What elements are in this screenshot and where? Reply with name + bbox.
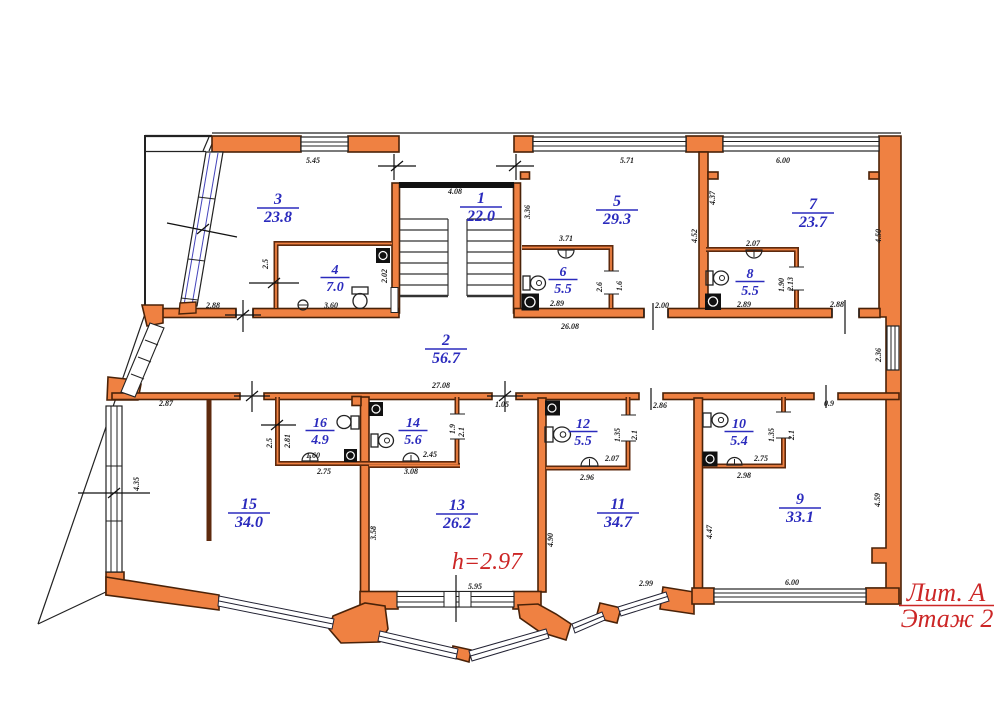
svg-text:13: 13 <box>449 497 465 514</box>
svg-text:2.07: 2.07 <box>604 454 620 463</box>
svg-text:4.9: 4.9 <box>310 433 329 448</box>
svg-text:Этаж 2: Этаж 2 <box>901 604 994 633</box>
svg-text:2.88: 2.88 <box>829 300 844 309</box>
svg-text:9: 9 <box>796 491 804 508</box>
svg-text:1.6: 1.6 <box>615 281 624 291</box>
svg-text:3.36: 3.36 <box>523 205 532 220</box>
svg-text:5.5: 5.5 <box>574 434 592 449</box>
svg-text:1.60: 1.60 <box>306 451 320 460</box>
svg-text:3.08: 3.08 <box>403 467 418 476</box>
svg-text:2.00: 2.00 <box>654 301 669 310</box>
svg-text:10: 10 <box>732 417 746 432</box>
svg-text:4.35: 4.35 <box>132 477 141 492</box>
svg-text:34.0: 34.0 <box>234 514 263 531</box>
svg-text:2.6: 2.6 <box>595 282 604 293</box>
svg-text:26.2: 26.2 <box>442 515 471 532</box>
svg-text:14: 14 <box>406 416 420 431</box>
svg-text:2.81: 2.81 <box>283 434 292 449</box>
svg-text:5: 5 <box>613 193 621 210</box>
svg-text:2.96: 2.96 <box>579 473 594 482</box>
svg-text:5.45: 5.45 <box>306 156 320 165</box>
svg-text:2.07: 2.07 <box>745 239 761 248</box>
svg-text:6: 6 <box>560 265 567 280</box>
svg-text:11: 11 <box>610 496 625 513</box>
svg-text:4.37: 4.37 <box>708 190 717 206</box>
svg-text:2.45: 2.45 <box>422 450 437 459</box>
svg-text:3: 3 <box>273 191 282 208</box>
svg-text:2.86: 2.86 <box>652 401 667 410</box>
svg-text:29.3: 29.3 <box>602 211 631 228</box>
svg-text:2.98: 2.98 <box>736 471 751 480</box>
svg-text:26.08: 26.08 <box>560 322 579 331</box>
svg-text:2.87: 2.87 <box>158 399 174 408</box>
svg-text:1.90: 1.90 <box>777 278 786 292</box>
svg-text:6.00: 6.00 <box>776 156 790 165</box>
svg-text:2.13: 2.13 <box>786 277 795 292</box>
svg-text:15: 15 <box>241 496 257 513</box>
svg-text:7.0: 7.0 <box>326 280 344 295</box>
svg-text:6.00: 6.00 <box>785 578 799 587</box>
svg-text:7: 7 <box>809 196 818 213</box>
svg-text:Лит. А: Лит. А <box>906 578 986 607</box>
svg-text:3.71: 3.71 <box>558 234 573 243</box>
svg-text:33.1: 33.1 <box>785 509 814 526</box>
svg-text:56.7: 56.7 <box>432 350 461 367</box>
svg-text:1.35: 1.35 <box>613 428 622 442</box>
svg-text:2.1: 2.1 <box>787 430 796 441</box>
svg-text:5.95: 5.95 <box>468 582 482 591</box>
svg-text:2.5: 2.5 <box>261 259 270 270</box>
svg-text:5.5: 5.5 <box>741 284 759 299</box>
svg-text:1.35: 1.35 <box>767 428 776 442</box>
svg-text:2.75: 2.75 <box>316 467 331 476</box>
svg-text:2.1: 2.1 <box>630 430 639 441</box>
svg-text:3.58: 3.58 <box>369 526 378 541</box>
svg-text:2.99: 2.99 <box>638 579 653 588</box>
svg-text:23.7: 23.7 <box>798 214 828 231</box>
svg-text:5.5: 5.5 <box>554 282 572 297</box>
svg-text:23.8: 23.8 <box>263 209 292 226</box>
svg-text:4.47: 4.47 <box>705 524 714 540</box>
svg-text:22.0: 22.0 <box>466 208 495 225</box>
svg-text:2.36: 2.36 <box>874 348 883 363</box>
svg-text:34.7: 34.7 <box>603 514 633 531</box>
svg-text:2.89: 2.89 <box>736 300 751 309</box>
svg-text:5.6: 5.6 <box>404 433 422 448</box>
svg-text:5.4: 5.4 <box>730 434 748 449</box>
svg-text:2: 2 <box>441 332 450 349</box>
svg-text:4.52: 4.52 <box>690 229 699 244</box>
svg-text:2.02: 2.02 <box>380 269 389 284</box>
svg-text:4.90: 4.90 <box>546 533 555 548</box>
svg-text:4.59: 4.59 <box>873 493 882 508</box>
svg-text:16: 16 <box>313 416 327 431</box>
svg-text:2.5: 2.5 <box>265 438 274 449</box>
svg-text:0.9: 0.9 <box>824 399 834 408</box>
svg-text:12: 12 <box>576 417 590 432</box>
svg-text:4.08: 4.08 <box>447 187 462 196</box>
svg-text:4.50: 4.50 <box>874 229 883 244</box>
svg-text:h=2.97: h=2.97 <box>452 549 523 575</box>
svg-text:2.1: 2.1 <box>457 427 466 438</box>
svg-text:2.75: 2.75 <box>753 454 768 463</box>
svg-text:2.88: 2.88 <box>205 301 220 310</box>
svg-text:27.08: 27.08 <box>431 381 450 390</box>
svg-text:3.60: 3.60 <box>323 301 338 310</box>
svg-text:2.89: 2.89 <box>549 299 564 308</box>
svg-text:1: 1 <box>477 190 485 207</box>
svg-text:4: 4 <box>331 263 339 278</box>
svg-text:1.9: 1.9 <box>448 424 457 434</box>
svg-text:5.71: 5.71 <box>620 156 634 165</box>
svg-text:1.05: 1.05 <box>495 400 509 409</box>
svg-text:8: 8 <box>747 267 754 282</box>
